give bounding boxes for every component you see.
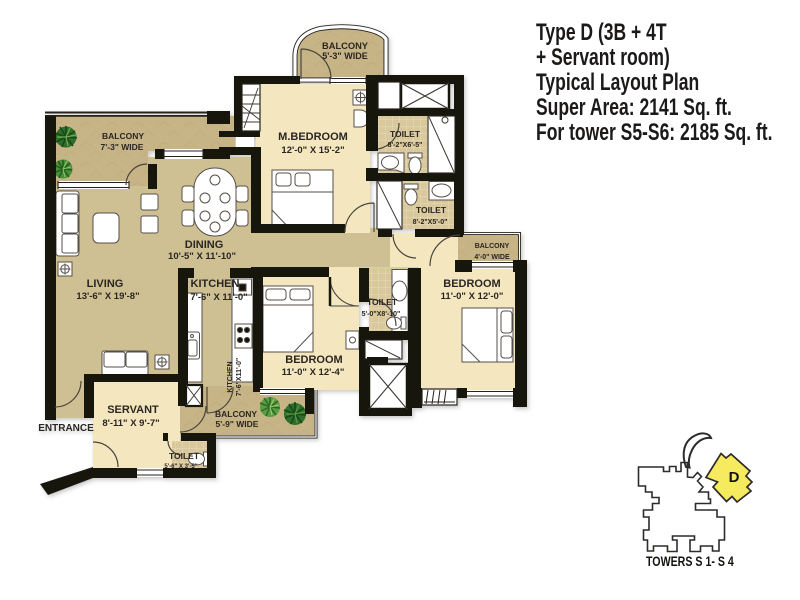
svg-text:SERVANT: SERVANT <box>107 404 159 416</box>
svg-text:TOILET: TOILET <box>169 451 200 461</box>
svg-text:Super Area: 2141 Sq. ft.: Super Area: 2141 Sq. ft. <box>536 94 732 120</box>
svg-text:BALCONY: BALCONY <box>215 409 257 419</box>
svg-text:4'-0" WIDE: 4'-0" WIDE <box>474 254 510 261</box>
svg-text:11'-0" X 12'-4": 11'-0" X 12'-4" <box>282 367 345 378</box>
svg-text:8'-11" X 9'-7": 8'-11" X 9'-7" <box>102 418 159 429</box>
svg-text:10'-5" X 11'-10": 10'-5" X 11'-10" <box>168 251 236 262</box>
svg-text:BEDROOM: BEDROOM <box>285 354 342 366</box>
svg-text:5'-0"X8'-10": 5'-0"X8'-10" <box>362 311 401 318</box>
svg-text:12'-0" X 15'-2": 12'-0" X 15'-2" <box>281 145 344 156</box>
svg-text:7'-6"X11'-0": 7'-6"X11'-0" <box>236 358 243 396</box>
svg-text:Type D (3B + 4T: Type D (3B + 4T <box>536 19 667 45</box>
svg-text:M.BEDROOM: M.BEDROOM <box>278 131 348 143</box>
svg-text:13'-6" X 19'-8": 13'-6" X 19'-8" <box>76 291 139 302</box>
svg-text:ENTRANCE: ENTRANCE <box>38 423 94 434</box>
svg-text:7'-3" WIDE: 7'-3" WIDE <box>101 142 144 152</box>
svg-text:TOWERS S 1- S 4: TOWERS S 1- S 4 <box>646 554 734 570</box>
svg-text:KITCHEN: KITCHEN <box>227 361 234 392</box>
svg-text:BEDROOM: BEDROOM <box>443 278 500 290</box>
svg-text:8'-2"X6'-5": 8'-2"X6'-5" <box>388 142 423 149</box>
svg-text:Typical Layout Plan: Typical Layout Plan <box>536 69 699 95</box>
svg-text:DINING: DINING <box>185 239 224 251</box>
svg-text:+ Servant room): + Servant room) <box>536 44 670 70</box>
svg-text:D: D <box>729 469 740 486</box>
svg-text:5'-9" WIDE: 5'-9" WIDE <box>216 419 259 429</box>
svg-text:LIVING: LIVING <box>87 278 124 290</box>
svg-text:TOILET: TOILET <box>390 129 421 139</box>
svg-text:5'-3" WIDE: 5'-3" WIDE <box>322 51 367 61</box>
svg-text:For tower S5-S6: 2185 Sq. ft.: For tower S5-S6: 2185 Sq. ft. <box>536 119 772 145</box>
svg-text:TOILET: TOILET <box>416 205 447 215</box>
svg-text:5'-6" X 3'-5": 5'-6" X 3'-5" <box>164 464 197 470</box>
svg-text:BALCONY: BALCONY <box>322 41 369 51</box>
svg-text:7'-6" X 11'-0": 7'-6" X 11'-0" <box>190 292 247 303</box>
svg-text:11'-0" X 12'-0": 11'-0" X 12'-0" <box>441 291 504 302</box>
svg-text:8'-2"X5'-0": 8'-2"X5'-0" <box>413 219 448 226</box>
svg-text:TOILET: TOILET <box>367 297 398 307</box>
svg-text:KITCHEN: KITCHEN <box>191 278 240 290</box>
svg-text:BALCONY: BALCONY <box>475 243 510 250</box>
svg-text:BALCONY: BALCONY <box>102 131 144 141</box>
